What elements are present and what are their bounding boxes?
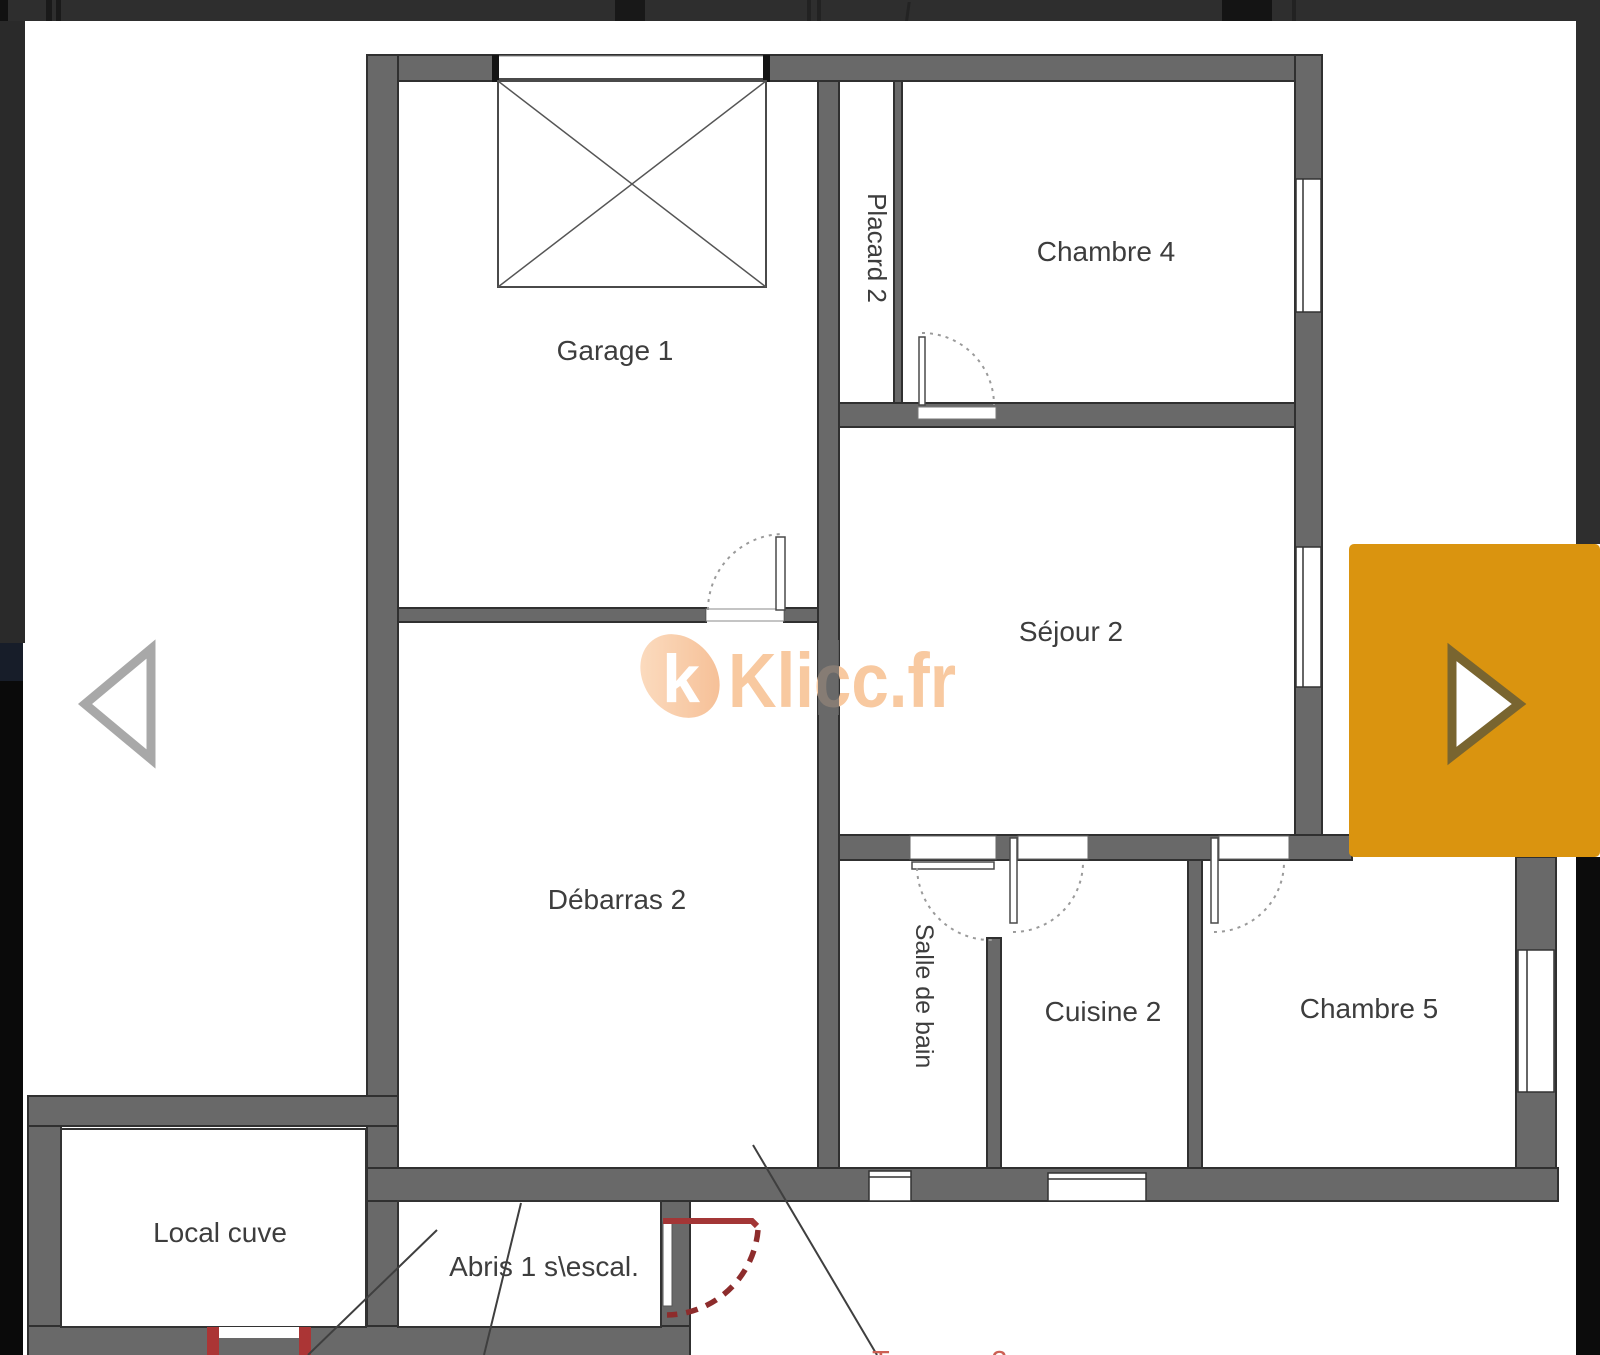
- svg-text:Séjour 2: Séjour 2: [1019, 616, 1123, 647]
- svg-text:Chambre 5: Chambre 5: [1300, 993, 1439, 1024]
- svg-text:k: k: [662, 641, 700, 717]
- svg-text:Chambre 4: Chambre 4: [1037, 236, 1176, 267]
- svg-text:Garage 1: Garage 1: [557, 335, 674, 366]
- svg-text:Abris 1 s\escal.: Abris 1 s\escal.: [449, 1251, 639, 1282]
- svg-text:Terrasse 2: Terrasse 2: [872, 1346, 1007, 1355]
- svg-text:Salle de bain: Salle de bain: [910, 924, 938, 1069]
- svg-text:Débarras 2: Débarras 2: [548, 884, 687, 915]
- svg-text:Local cuve: Local cuve: [153, 1217, 287, 1248]
- svg-text:Cuisine 2: Cuisine 2: [1045, 996, 1162, 1027]
- svg-text:Klicc.fr: Klicc.fr: [728, 638, 956, 724]
- svg-text:Placard 2: Placard 2: [862, 193, 892, 303]
